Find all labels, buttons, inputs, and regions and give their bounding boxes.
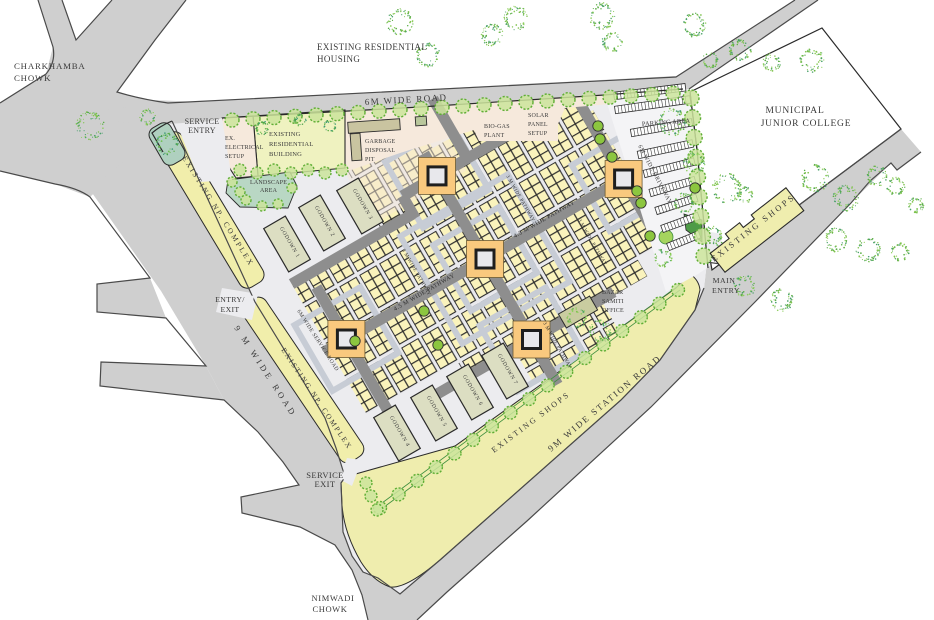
svg-text:RESIDENTIAL: RESIDENTIAL (269, 141, 313, 148)
svg-text:ELECTRICAL: ELECTRICAL (225, 145, 264, 151)
svg-text:EXIT: EXIT (315, 479, 336, 489)
svg-text:SETUP: SETUP (225, 154, 245, 160)
svg-text:CHOWK: CHOWK (14, 73, 51, 83)
svg-text:MUNICIPAL: MUNICIPAL (765, 106, 824, 116)
svg-text:ENTRY/: ENTRY/ (215, 295, 245, 304)
svg-text:EXISTING: EXISTING (269, 131, 301, 138)
svg-text:SAMITI: SAMITI (602, 299, 624, 305)
svg-text:NIMWADI: NIMWADI (312, 593, 355, 603)
svg-text:SETUP: SETUP (528, 131, 548, 137)
svg-text:PLANT: PLANT (484, 133, 504, 139)
svg-text:PANEL: PANEL (528, 122, 548, 128)
svg-text:DISPOSAL: DISPOSAL (365, 148, 395, 154)
svg-text:PIT: PIT (365, 157, 375, 163)
svg-text:AREA: AREA (260, 188, 278, 194)
svg-text:SOLAR: SOLAR (528, 113, 549, 119)
svg-text:HOUSING: HOUSING (317, 54, 360, 64)
svg-text:ENTRY: ENTRY (188, 126, 216, 135)
svg-text:CHARKHAMBA: CHARKHAMBA (14, 61, 86, 71)
svg-text:CHOWK: CHOWK (312, 604, 347, 614)
svg-text:BIO-GAS: BIO-GAS (484, 124, 510, 130)
svg-text:EXIT: EXIT (221, 305, 240, 314)
svg-text:JUNIOR COLLEGE: JUNIOR COLLEGE (761, 119, 852, 129)
svg-text:OFFICE: OFFICE (602, 308, 624, 314)
svg-text:LANDSCAPE: LANDSCAPE (250, 180, 287, 186)
svg-text:ENTRY: ENTRY (712, 286, 740, 295)
svg-text:EX.: EX. (225, 136, 235, 142)
svg-text:EXISTING RESIDENTIAL: EXISTING RESIDENTIAL (317, 42, 427, 52)
svg-text:BAZAR: BAZAR (602, 290, 623, 296)
svg-text:SERVICE: SERVICE (185, 117, 220, 126)
svg-text:GARBAGE: GARBAGE (365, 139, 396, 145)
svg-text:MAIN: MAIN (713, 276, 736, 285)
svg-text:BUILDING: BUILDING (269, 151, 302, 158)
